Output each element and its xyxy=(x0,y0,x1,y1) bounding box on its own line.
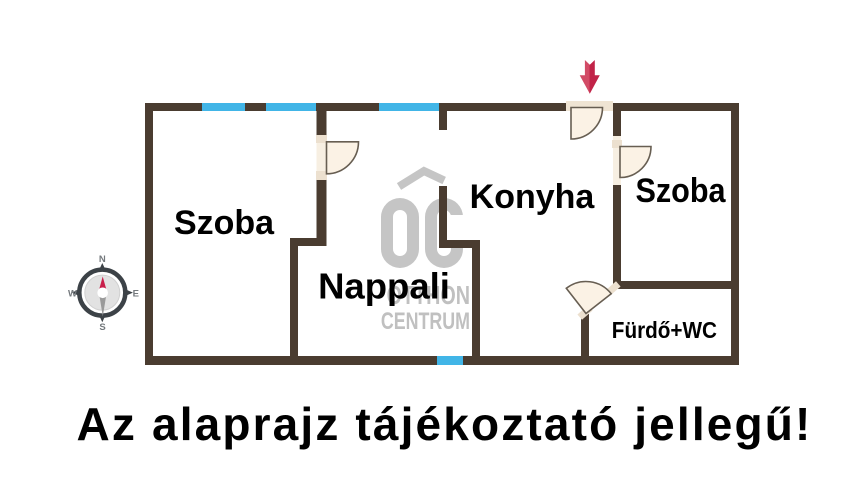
svg-text:W: W xyxy=(68,288,77,299)
svg-text:Konyha: Konyha xyxy=(470,178,596,216)
svg-text:CENTRUM: CENTRUM xyxy=(381,309,470,335)
svg-text:Az alaprajz tájékoztató jelleg: Az alaprajz tájékoztató jellegű! xyxy=(77,398,813,450)
svg-text:Szoba: Szoba xyxy=(174,204,275,242)
svg-text:N: N xyxy=(99,254,106,265)
svg-text:Nappali: Nappali xyxy=(318,266,450,307)
svg-text:Szoba: Szoba xyxy=(635,172,726,210)
svg-text:Fürdő+WC: Fürdő+WC xyxy=(612,317,717,343)
svg-text:E: E xyxy=(133,288,139,299)
svg-text:S: S xyxy=(99,322,105,333)
